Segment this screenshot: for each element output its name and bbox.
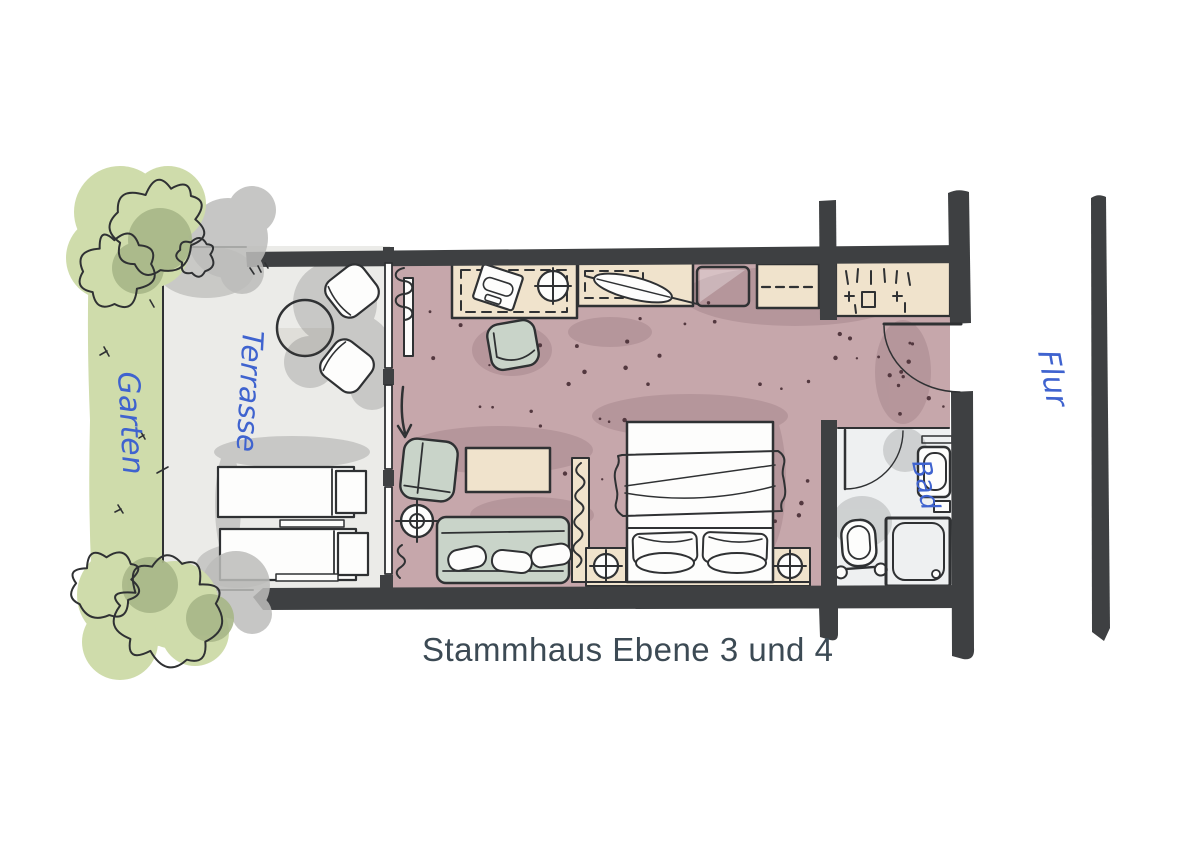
floor-speckle: [899, 370, 903, 374]
floor-speckle: [758, 382, 762, 386]
bottom-wall: [253, 585, 965, 610]
floor-speckle: [488, 364, 490, 366]
bush-bottom: [71, 547, 272, 680]
floor-speckle: [623, 366, 628, 371]
floor-speckle: [431, 356, 435, 360]
floor-speckle: [429, 310, 432, 313]
floor-speckle: [575, 344, 579, 348]
right-wall-lower: [951, 391, 974, 659]
floor-speckle: [927, 396, 931, 400]
wardrobe: [836, 262, 950, 316]
floor-speckle: [529, 410, 532, 413]
floor-speckle: [539, 424, 542, 427]
right-wall-upper: [948, 190, 971, 324]
floor-speckle: [646, 382, 650, 386]
label-terrace: Terrasse: [230, 330, 270, 453]
floor-speckle: [911, 342, 914, 345]
floor-speckle: [838, 332, 842, 336]
floor-speckle: [713, 320, 717, 324]
floor-speckle: [599, 417, 602, 420]
label-corridor: Flur: [1030, 347, 1075, 411]
corridor-wall: [1091, 195, 1110, 641]
floor-speckle: [797, 513, 801, 517]
armchair: [399, 437, 459, 502]
floorplan-canvas: Garten Terrasse Bad Flur Stammhaus Ebene…: [0, 0, 1200, 848]
floor-speckle: [780, 387, 783, 390]
floor-speckle: [601, 478, 603, 480]
floor-speckle: [491, 406, 494, 409]
top-column: [819, 200, 837, 320]
floor-speckle: [459, 323, 463, 327]
floor-speckle: [888, 373, 892, 377]
floor-speckle: [833, 356, 837, 360]
floor-speckle: [848, 336, 852, 340]
floor-speckle: [566, 382, 570, 386]
floor-speckle: [638, 317, 641, 320]
label-garden: Garten: [110, 371, 150, 476]
floor-speckle: [625, 340, 629, 344]
floor-speckle: [707, 301, 710, 304]
floor-speckle: [906, 359, 910, 363]
sofa: [437, 517, 572, 583]
floor-speckle: [479, 405, 482, 408]
floor-speckle: [807, 380, 810, 383]
floor-speckle: [908, 342, 911, 345]
minibar-counter: [757, 264, 819, 308]
coffee-table: [466, 448, 550, 492]
floor-speckle: [657, 354, 661, 358]
floor-speckle: [856, 357, 858, 359]
floor-speckle: [582, 370, 587, 375]
floorplan-title: Stammhaus Ebene 3 und 4: [422, 631, 833, 668]
floor-speckle: [877, 355, 880, 358]
floor-speckle: [942, 405, 945, 408]
floor-speckle: [902, 375, 905, 378]
floorplan-drawing: Garten Terrasse Bad Flur Stammhaus Ebene…: [0, 0, 1200, 848]
floor-speckle: [799, 501, 804, 506]
window-panes: [385, 263, 392, 574]
desk-chair: [485, 318, 540, 372]
floor-speckle: [897, 384, 900, 387]
floor-speckle: [608, 420, 611, 423]
floor-speckle: [684, 323, 687, 326]
floor-speckle: [898, 412, 902, 416]
floor-speckle: [806, 479, 810, 483]
bathroom-left-wall: [821, 420, 837, 590]
floor-speckle: [563, 471, 567, 475]
sun-lounger-1: [218, 467, 366, 527]
